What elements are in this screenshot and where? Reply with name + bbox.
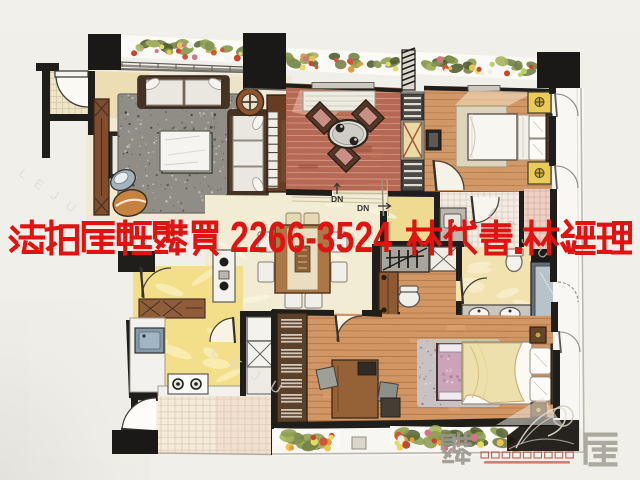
svg-text:2266-3524: 2266-3524	[230, 213, 392, 262]
